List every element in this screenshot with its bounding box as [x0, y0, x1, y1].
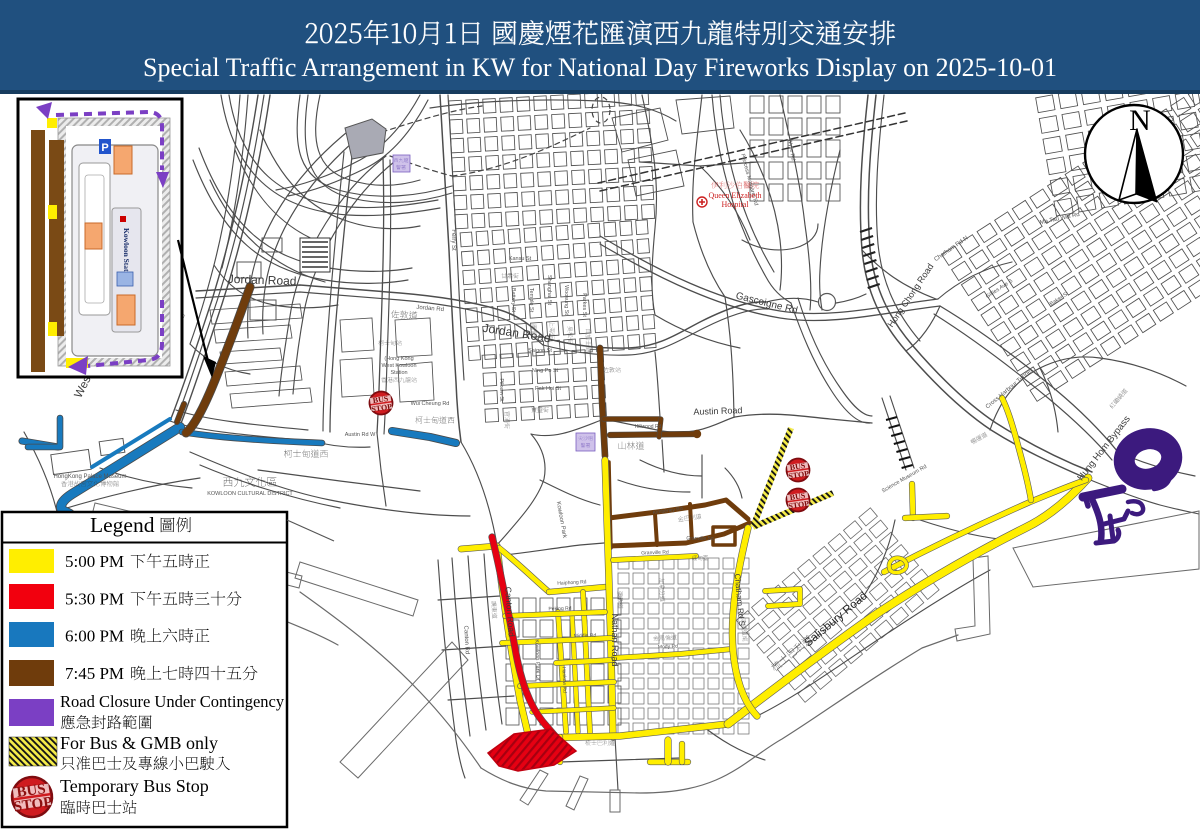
svg-text:Queen Elizabeth: Queen Elizabeth	[708, 191, 761, 200]
svg-text:Legend: Legend	[90, 513, 155, 537]
svg-text:For Bus & GMB only: For Bus & GMB only	[60, 733, 218, 753]
svg-text:Hospital: Hospital	[721, 200, 749, 209]
svg-text:Station: Station	[390, 370, 407, 376]
svg-text:7:45 PM: 7:45 PM	[65, 664, 124, 683]
svg-text:Ferry St: Ferry St	[450, 229, 456, 251]
svg-text:5:00 PM: 5:00 PM	[65, 552, 124, 571]
svg-text:Middle Rd: Middle Rd	[574, 633, 597, 640]
svg-text:N: N	[1129, 104, 1151, 137]
svg-text:(Hong Kong: (Hong Kong	[384, 356, 413, 362]
svg-text:Temple St: Temple St	[528, 288, 534, 313]
svg-text:Battery St: Battery St	[510, 288, 516, 313]
svg-text:Special Traffic Arrangement in: Special Traffic Arrangement in KW for Na…	[143, 53, 1057, 82]
svg-text:Hillwood Rd: Hillwood Rd	[635, 424, 662, 430]
svg-text:Peking Rd: Peking Rd	[548, 606, 571, 613]
svg-text:Austin Road: Austin Road	[693, 405, 742, 417]
svg-text:HongKong Palace Museum: HongKong Palace Museum	[53, 474, 126, 480]
svg-text:Wui Cheung Rd: Wui Cheung Rd	[411, 401, 450, 407]
svg-text:Temporary Bus Stop: Temporary Bus Stop	[60, 776, 209, 796]
svg-text:Hankow Rd: Hankow Rd	[561, 667, 568, 693]
svg-text:Shanghai St: Shanghai St	[546, 275, 552, 305]
svg-text:Road Closure Under Contingency: Road Closure Under Contingency	[60, 692, 285, 711]
svg-text:West Kowloon: West Kowloon	[381, 363, 416, 369]
svg-text:Nathan Road: Nathan Road	[610, 613, 620, 666]
svg-text:Jordan Road: Jordan Road	[228, 272, 297, 288]
svg-text:Ning Po St: Ning Po St	[532, 368, 559, 374]
svg-text:P: P	[101, 142, 108, 154]
svg-text:Granville Sq: Granville Sq	[686, 536, 713, 542]
svg-text:5:30 PM: 5:30 PM	[65, 590, 124, 609]
svg-text:Saigon St: Saigon St	[528, 348, 552, 354]
svg-text:KOWLOON CULTURAL DISTRICT: KOWLOON CULTURAL DISTRICT	[207, 491, 293, 497]
svg-text:Granville Rd: Granville Rd	[641, 550, 669, 557]
svg-text:Austin Rd W: Austin Rd W	[345, 432, 376, 438]
svg-text:Mody Rd: Mody Rd	[658, 643, 679, 650]
svg-text:Parkes St: Parkes St	[581, 293, 587, 317]
svg-text:Pak Hoi St: Pak Hoi St	[535, 386, 561, 392]
svg-text:Pilkem St: Pilkem St	[498, 378, 504, 402]
svg-text:6:00 PM: 6:00 PM	[65, 627, 124, 646]
svg-text:Kansu St: Kansu St	[509, 256, 532, 262]
svg-text:Woosung St: Woosung St	[563, 285, 569, 315]
